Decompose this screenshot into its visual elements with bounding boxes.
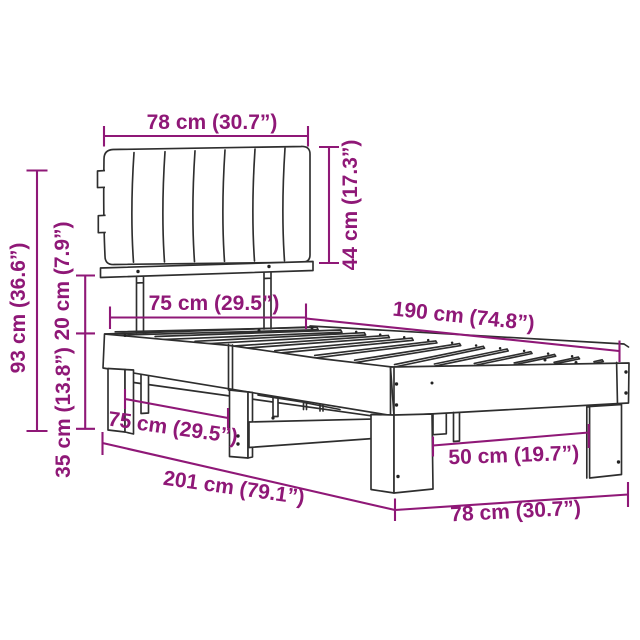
svg-text:50 cm (19.7”): 50 cm (19.7”) [448,442,579,470]
svg-text:44 cm (17.3”): 44 cm (17.3”) [339,140,362,271]
svg-text:20 cm (7.9”): 20 cm (7.9”) [51,221,74,340]
svg-text:35 cm (13.8”): 35 cm (13.8”) [52,347,75,478]
svg-text:78 cm (30.7”): 78 cm (30.7”) [147,111,278,134]
svg-text:93 cm (36.6”): 93 cm (36.6”) [7,243,30,374]
svg-text:75 cm (29.5”): 75 cm (29.5”) [149,292,280,315]
